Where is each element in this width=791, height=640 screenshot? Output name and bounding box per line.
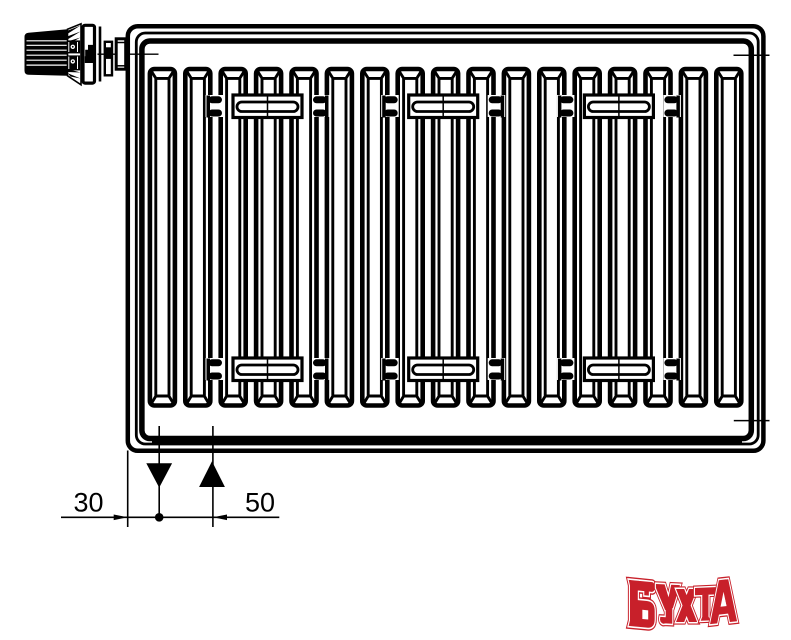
svg-text:30: 30 (73, 488, 103, 518)
svg-text:50: 50 (245, 488, 275, 518)
